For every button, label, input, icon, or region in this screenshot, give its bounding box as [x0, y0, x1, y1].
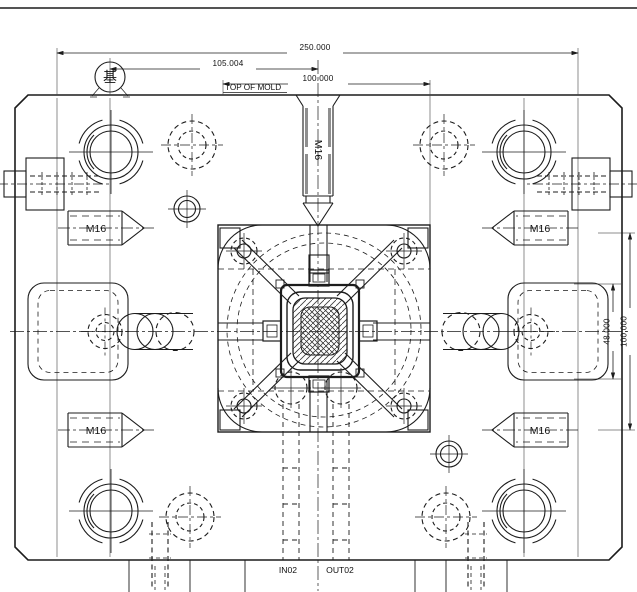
- ejector-hole-insert-tl: [226, 233, 262, 269]
- dim-mold-width-label: 100.000: [303, 74, 334, 83]
- guide-bushing-top-right: [482, 110, 566, 194]
- m16-label-right-top: M16: [530, 223, 551, 235]
- mold-insert: [218, 225, 430, 432]
- dim-datum-offset-label: 105.004: [213, 59, 244, 68]
- ejector-hole-insert-bl: [226, 388, 262, 424]
- clamp-slot-bottom-left: [149, 522, 171, 590]
- water-channels: [283, 404, 349, 560]
- datum-character: 基: [103, 69, 117, 85]
- eyebolt-boss-right: [524, 158, 637, 210]
- m16-label-right-bottom: M16: [530, 425, 551, 437]
- hatched-core: [301, 307, 339, 355]
- guide-bushing-top-left: [69, 110, 153, 194]
- guide-bushing-bottom-left: [69, 469, 153, 553]
- cap-screw-top-left: [168, 190, 206, 228]
- clamp-slot-bottom-right: [465, 522, 487, 590]
- water-out-label: OUT02: [326, 565, 354, 575]
- dim-side-spacing-label: 100.000: [620, 316, 629, 347]
- guide-bushing-bottom-right: [482, 469, 566, 553]
- m16-hole-left-bottom: [58, 413, 156, 447]
- dim-pocket-height-label: 48.000: [603, 318, 612, 344]
- cap-screw-bottom-right: [430, 435, 468, 473]
- cavity-block: [263, 270, 377, 392]
- m16-label-top-center: M16: [312, 140, 324, 161]
- ejector-hole-insert-tr: [386, 233, 422, 269]
- top-of-mold-label: TOP OF MOLD: [225, 83, 281, 92]
- m16-label-left-top: M16: [86, 223, 107, 235]
- drawing-labels: 250.000 105.004 100.000 TOP OF MOLD 基 M1…: [86, 43, 629, 575]
- water-in-label: IN02: [279, 565, 297, 575]
- m16-hole-left-top: [58, 211, 156, 245]
- return-pin-hole-top-left: [161, 114, 223, 176]
- return-pin-hole-top-right: [413, 114, 475, 176]
- dim-overall-width-label: 250.000: [300, 43, 331, 52]
- return-pin-hole-bottom-left: [159, 486, 221, 548]
- mold-drawing-page: 250.000 105.004 100.000 TOP OF MOLD 基 M1…: [0, 0, 637, 592]
- ejector-hole-insert-br: [386, 388, 422, 424]
- return-pin-hole-bottom-right: [415, 486, 477, 548]
- mold-plate-top-view: 250.000 105.004 100.000 TOP OF MOLD 基 M1…: [0, 0, 637, 592]
- m16-label-left-bottom: M16: [86, 425, 107, 437]
